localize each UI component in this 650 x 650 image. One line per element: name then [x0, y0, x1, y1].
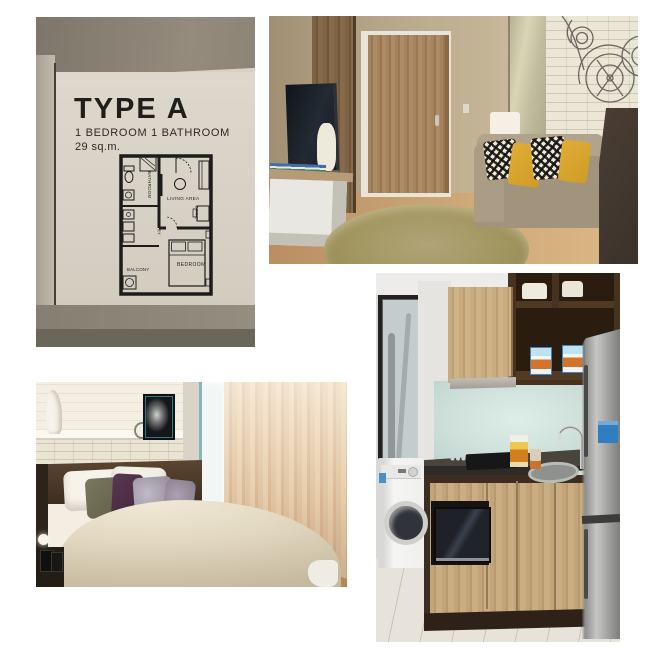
photo-frame [51, 552, 63, 572]
living-room-photo [269, 16, 638, 264]
unit-type-title: TYPE A [74, 93, 190, 126]
washer-energy-tag [379, 473, 386, 483]
ball-lamp [38, 534, 49, 545]
floor-plan-diagram: BATHROOM PANTRY BALCONY LIVING AREA DINI… [119, 154, 213, 296]
floor-lamp-shade [490, 112, 520, 135]
plan-label-balcony: BALCONY [127, 267, 149, 272]
range-hood [450, 377, 516, 389]
scooter-sketch [554, 16, 638, 111]
cereal-box [562, 345, 584, 373]
floor-strip-dark [36, 329, 255, 347]
sheet-corner [308, 560, 338, 587]
white-dish [562, 281, 583, 297]
washer-knob [408, 467, 418, 477]
yellow-pillow [558, 139, 592, 183]
washer-display [398, 469, 406, 473]
unit-area-text: 29 sq.m. [75, 141, 120, 153]
microwave [434, 507, 491, 563]
upper-wood-cabinet [448, 287, 513, 383]
white-dish [522, 283, 547, 299]
entrance-door [368, 35, 449, 193]
stove-knobs [450, 456, 466, 461]
cabinet-door-seam [516, 481, 518, 611]
condiment-jar [530, 449, 541, 469]
cabinet-door-seam [554, 479, 556, 611]
light-switch [463, 104, 469, 113]
floor-strip-light [36, 305, 255, 329]
photo-collage: TYPE A 1 BEDROOM 1 BATHROOM 29 sq.m. [0, 0, 650, 650]
fridge-handle [584, 365, 588, 457]
plan-label-bathroom: BATHROOM [147, 171, 152, 198]
unit-rooms-subtitle: 1 BEDROOM 1 BATHROOM [75, 127, 230, 139]
plan-label-dining: DINING [195, 206, 199, 220]
kitchen-photo [376, 273, 620, 642]
dark-dining-chair [599, 108, 638, 264]
wall-top-band [36, 17, 255, 79]
fridge-blue-label [598, 421, 618, 443]
fridge-handle [584, 529, 588, 599]
floor-plan-sign-photo: TYPE A 1 BEDROOM 1 BATHROOM 29 sq.m. [36, 17, 255, 347]
plan-label-bedroom: BEDROOM [177, 262, 206, 268]
portrait-artwork [143, 394, 175, 440]
wall-left-edge [36, 55, 55, 315]
cereal-box-counter [510, 435, 528, 467]
door-handle [435, 115, 439, 126]
shelf-divider [552, 273, 559, 308]
washer-door [384, 501, 428, 545]
bedroom-photo [36, 382, 347, 587]
cereal-box [530, 347, 552, 375]
shelf-bar [516, 301, 614, 308]
plan-label-living: LIVING AREA [167, 196, 200, 201]
plan-label-pantry: PANTRY [157, 216, 162, 235]
